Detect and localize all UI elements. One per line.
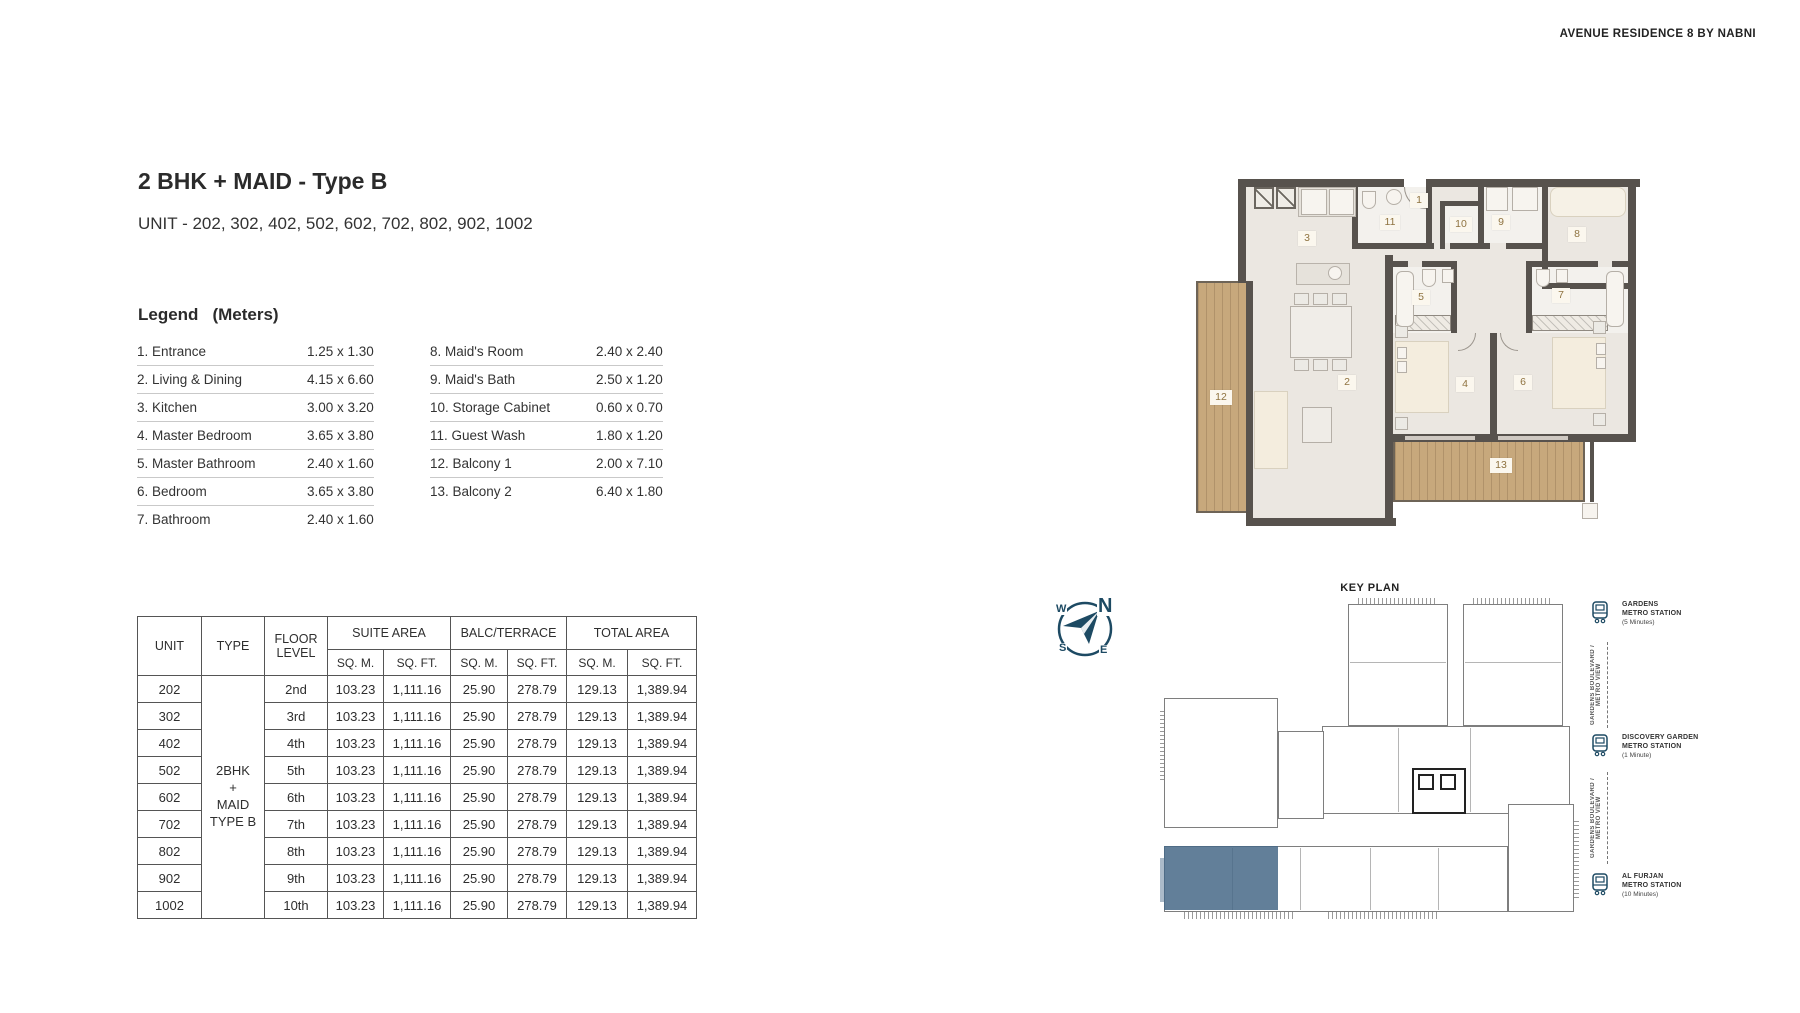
metro-train-icon: [1590, 872, 1610, 896]
legend-row: 13. Balcony 26.40 x 1.80: [430, 478, 663, 505]
nightstand-icon: [1593, 321, 1606, 334]
cell-total-sqft: 1,389.94: [628, 838, 697, 865]
balcony-hatch: [1184, 912, 1294, 919]
cell-unit: 302: [138, 703, 202, 730]
col-header-type: TYPE: [202, 617, 265, 676]
cell-unit: 802: [138, 838, 202, 865]
legend-room-dims: 1.25 x 1.30: [307, 344, 374, 359]
pillow-icon: [1596, 343, 1606, 355]
cell-floor: 10th: [265, 892, 328, 919]
keyplan-line: [1470, 728, 1471, 812]
cell-suite-sqft: 1,111.16: [384, 811, 451, 838]
metro-train-icon: [1590, 733, 1610, 757]
station-time: (1 Minute): [1622, 752, 1732, 759]
legend-title: Legend: [138, 305, 198, 324]
wall: [1385, 442, 1393, 526]
cell-suite-sqm: 103.23: [328, 676, 384, 703]
legend-left-column: 1. Entrance1.25 x 1.30 2. Living & Dinin…: [137, 338, 374, 533]
legend-row: 5. Master Bathroom2.40 x 1.60: [137, 450, 374, 478]
chair-icon: [1294, 359, 1309, 371]
toilet-icon: [1362, 191, 1376, 209]
subcol-sqft: SQ. FT.: [384, 650, 451, 676]
legend-room-name: 3. Kitchen: [137, 400, 307, 415]
room-label-living-dining: 2: [1338, 375, 1356, 390]
legend-room-dims: 1.80 x 1.20: [596, 428, 663, 443]
building-wing: [1278, 731, 1324, 819]
room-label-kitchen: 3: [1298, 231, 1316, 246]
legend-room-name: 7. Bathroom: [137, 512, 307, 527]
room-label-entrance: 1: [1410, 193, 1428, 208]
cell-total-sqft: 1,389.94: [628, 757, 697, 784]
cell-suite-sqft: 1,111.16: [384, 838, 451, 865]
station-name: METRO STATION: [1622, 742, 1732, 751]
chair-icon: [1313, 359, 1328, 371]
cell-total-sqft: 1,389.94: [628, 784, 697, 811]
metro-route-dashed-line: [1607, 642, 1608, 728]
washer-icon: [1486, 187, 1508, 211]
maid-bed-icon: [1550, 187, 1626, 217]
cell-unit: 502: [138, 757, 202, 784]
brochure-page: AVENUE RESIDENCE 8 BY NABNI 2 BHK + MAID…: [0, 0, 1800, 1013]
entrance-door-opening: [1404, 179, 1426, 187]
kitchen-sink-icon: [1301, 189, 1327, 215]
balcony-2: [1393, 440, 1585, 502]
legend-row: 3. Kitchen3.00 x 3.20: [137, 394, 374, 422]
sink-icon: [1556, 269, 1568, 283]
legend-room-name: 2. Living & Dining: [137, 372, 307, 387]
type-line: TYPE B: [202, 814, 264, 831]
cell-floor: 5th: [265, 757, 328, 784]
col-header-total-area: TOTAL AREA: [567, 617, 697, 650]
legend-row: 6. Bedroom3.65 x 3.80: [137, 478, 374, 506]
keyplan-line: [1300, 848, 1301, 910]
keyplan-line: [1438, 848, 1439, 910]
cell-suite-sqft: 1,111.16: [384, 892, 451, 919]
col-header-suite-area: SUITE AREA: [328, 617, 451, 650]
key-plan: [1160, 598, 1580, 920]
stove-icon: [1329, 189, 1354, 215]
cell-balc-sqft: 278.79: [508, 838, 567, 865]
page-title: 2 BHK + MAID - Type B: [138, 168, 387, 195]
pillow-icon: [1397, 361, 1407, 373]
station-name: METRO STATION: [1622, 609, 1732, 618]
col-header-unit: UNIT: [138, 617, 202, 676]
cell-balc-sqm: 25.90: [451, 730, 508, 757]
cell-suite-sqm: 103.23: [328, 703, 384, 730]
cell-balc-sqm: 25.90: [451, 865, 508, 892]
room-label-balcony-2: 13: [1490, 458, 1512, 473]
window: [1405, 436, 1475, 440]
cell-balc-sqm: 25.90: [451, 784, 508, 811]
floor-plan: 1 2 3 4 5 6 7 8 9 10 11 12 13: [1190, 175, 1655, 547]
room-label-bedroom: 6: [1514, 375, 1532, 390]
subcol-sqft: SQ. FT.: [628, 650, 697, 676]
cell-total-sqm: 129.13: [567, 892, 628, 919]
cell-balc-sqft: 278.79: [508, 757, 567, 784]
legend-room-dims: 2.40 x 2.40: [596, 344, 663, 359]
shower-icon: [1512, 187, 1538, 211]
cell-total-sqm: 129.13: [567, 784, 628, 811]
legend-room-dims: 2.00 x 7.10: [596, 456, 663, 471]
cell-floor: 2nd: [265, 676, 328, 703]
cell-unit: 602: [138, 784, 202, 811]
unit-area-table: UNIT TYPE FLOOR LEVEL SUITE AREA BALC/TE…: [137, 616, 697, 919]
balcony-hatch: [1574, 818, 1579, 898]
keyplan-line: [1370, 848, 1371, 910]
cell-suite-sqft: 1,111.16: [384, 865, 451, 892]
room-label-master-bathroom: 5: [1412, 290, 1430, 305]
cell-total-sqm: 129.13: [567, 865, 628, 892]
station-name: AL FURJAN: [1622, 872, 1732, 881]
building-wing: [1463, 604, 1563, 726]
cell-unit: 1002: [138, 892, 202, 919]
metro-station-item: AL FURJAN METRO STATION (10 Minutes): [1622, 872, 1732, 898]
cell-total-sqft: 1,389.94: [628, 811, 697, 838]
legend-room-name: 10. Storage Cabinet: [430, 400, 596, 415]
compass-west: W: [1055, 604, 1067, 615]
legend-room-dims: 2.40 x 1.60: [307, 512, 374, 527]
wall: [1440, 201, 1445, 249]
cell-floor: 7th: [265, 811, 328, 838]
building-wing: [1508, 804, 1574, 912]
wall: [1478, 179, 1484, 249]
keyplan-line: [1465, 662, 1561, 663]
subcol-sqm: SQ. M.: [567, 650, 628, 676]
legend-room-name: 12. Balcony 1: [430, 456, 596, 471]
metro-corridor-label: GARDENS BOULEVARD / METRO VIEW: [1590, 642, 1602, 728]
cell-balc-sqm: 25.90: [451, 703, 508, 730]
toilet-icon: [1536, 269, 1550, 287]
compass: W N S E: [1053, 596, 1117, 660]
cell-floor: 4th: [265, 730, 328, 757]
table-row: 202 2BHK + MAID TYPE B 2nd 103.23 1,111.…: [138, 676, 697, 703]
subcol-sqm: SQ. M.: [328, 650, 384, 676]
cell-suite-sqm: 103.23: [328, 865, 384, 892]
cell-floor: 3rd: [265, 703, 328, 730]
legend-room-dims: 3.65 x 3.80: [307, 428, 374, 443]
door-opening: [1408, 261, 1422, 267]
room-label-maids-room: 8: [1568, 227, 1586, 242]
wall: [1440, 201, 1482, 206]
door-opening: [1490, 243, 1506, 249]
cell-total-sqft: 1,389.94: [628, 892, 697, 919]
cell-balc-sqm: 25.90: [451, 757, 508, 784]
cell-balc-sqft: 278.79: [508, 892, 567, 919]
window: [1498, 436, 1568, 440]
col-header-balc-terrace: BALC/TERRACE: [451, 617, 567, 650]
metro-station-item: DISCOVERY GARDEN METRO STATION (1 Minute…: [1622, 733, 1732, 759]
metro-route-dashed-line: [1607, 772, 1608, 864]
cell-type: 2BHK + MAID TYPE B: [202, 676, 265, 919]
nightstand-icon: [1593, 413, 1606, 426]
station-time: (5 Minutes): [1622, 619, 1732, 626]
cell-suite-sqm: 103.23: [328, 892, 384, 919]
brand-text: AVENUE RESIDENCE 8 BY NABNI: [1456, 28, 1756, 40]
cell-suite-sqft: 1,111.16: [384, 676, 451, 703]
legend-room-name: 9. Maid's Bath: [430, 372, 596, 387]
door-opening: [1598, 261, 1612, 267]
cell-suite-sqft: 1,111.16: [384, 703, 451, 730]
legend-row: 12. Balcony 12.00 x 7.10: [430, 450, 663, 478]
wall: [1246, 518, 1396, 526]
wall: [1490, 333, 1497, 442]
compass-south: S: [1058, 643, 1067, 654]
legend-row: 7. Bathroom2.40 x 1.60: [137, 506, 374, 533]
chair-icon: [1313, 293, 1328, 305]
subcol-sqft: SQ. FT.: [508, 650, 567, 676]
sink-icon: [1386, 189, 1402, 205]
cell-balc-sqft: 278.79: [508, 730, 567, 757]
room-label-master-bedroom: 4: [1456, 377, 1474, 392]
cell-unit: 902: [138, 865, 202, 892]
room-label-guest-wash: 11: [1380, 215, 1400, 230]
type-line: +: [202, 780, 264, 797]
sofa-icon: [1254, 391, 1288, 469]
balcony-hatch: [1328, 912, 1438, 919]
sink-icon: [1442, 269, 1454, 283]
cell-suite-sqm: 103.23: [328, 730, 384, 757]
legend-room-name: 4. Master Bedroom: [137, 428, 307, 443]
wall: [1393, 261, 1457, 267]
wall: [1526, 261, 1628, 267]
legend-right-column: 8. Maid's Room2.40 x 2.40 9. Maid's Bath…: [430, 338, 663, 505]
cell-suite-sqft: 1,111.16: [384, 757, 451, 784]
keyplan-line: [1398, 728, 1399, 812]
cell-suite-sqm: 103.23: [328, 838, 384, 865]
cell-total-sqft: 1,389.94: [628, 865, 697, 892]
cell-suite-sqm: 103.23: [328, 784, 384, 811]
cell-balc-sqft: 278.79: [508, 676, 567, 703]
legend-row: 8. Maid's Room2.40 x 2.40: [430, 338, 663, 366]
pillow-icon: [1596, 357, 1606, 369]
building-wing: [1164, 698, 1278, 828]
cell-balc-sqft: 278.79: [508, 703, 567, 730]
cell-balc-sqm: 25.90: [451, 811, 508, 838]
legend-row: 4. Master Bedroom3.65 x 3.80: [137, 422, 374, 450]
type-line: MAID: [202, 797, 264, 814]
chair-icon: [1332, 359, 1347, 371]
room-label-bathroom: 7: [1552, 288, 1570, 303]
cell-floor: 6th: [265, 784, 328, 811]
wall: [1590, 442, 1594, 502]
legend-room-name: 13. Balcony 2: [430, 484, 596, 499]
cell-suite-sqm: 103.23: [328, 757, 384, 784]
utility-box: [1582, 503, 1598, 519]
cell-suite-sqm: 103.23: [328, 811, 384, 838]
unit-list: UNIT - 202, 302, 402, 502, 602, 702, 802…: [138, 214, 533, 234]
legend-room-name: 8. Maid's Room: [430, 344, 596, 359]
cell-total-sqft: 1,389.94: [628, 676, 697, 703]
cell-balc-sqft: 278.79: [508, 784, 567, 811]
legend-row: 11. Guest Wash1.80 x 1.20: [430, 422, 663, 450]
cell-balc-sqft: 278.79: [508, 811, 567, 838]
cell-unit: 202: [138, 676, 202, 703]
legend-room-name: 1. Entrance: [137, 344, 307, 359]
legend-room-dims: 3.65 x 3.80: [307, 484, 374, 499]
chair-icon: [1294, 293, 1309, 305]
cell-total-sqm: 129.13: [567, 811, 628, 838]
legend-room-dims: 6.40 x 1.80: [596, 484, 663, 499]
nightstand-icon: [1395, 417, 1408, 430]
cell-suite-sqft: 1,111.16: [384, 784, 451, 811]
island-sink-icon: [1328, 266, 1342, 280]
elevator-shaft: [1418, 774, 1434, 790]
wall: [1426, 179, 1432, 249]
legend-room-name: 6. Bedroom: [137, 484, 307, 499]
compass-north: N: [1097, 596, 1113, 616]
legend-units-label: (Meters): [212, 305, 278, 324]
cell-balc-sqm: 25.90: [451, 676, 508, 703]
room-label-balcony-1: 12: [1210, 390, 1232, 405]
cell-unit: 702: [138, 811, 202, 838]
station-name: DISCOVERY GARDEN: [1622, 733, 1732, 742]
col-header-floor: FLOOR LEVEL: [265, 617, 328, 676]
wall: [1246, 281, 1253, 526]
cell-suite-sqft: 1,111.16: [384, 730, 451, 757]
wall: [1385, 255, 1393, 442]
toilet-icon: [1422, 269, 1436, 287]
key-plan-title: KEY PLAN: [1160, 582, 1580, 594]
legend-room-dims: 2.40 x 1.60: [307, 456, 374, 471]
wall: [1238, 179, 1246, 283]
legend-row: 2. Living & Dining4.15 x 6.60: [137, 366, 374, 394]
wall: [1352, 243, 1548, 249]
type-line: 2BHK: [202, 763, 264, 780]
station-name: METRO STATION: [1622, 881, 1732, 890]
pillow-icon: [1397, 347, 1407, 359]
shaft-icon: [1276, 187, 1296, 209]
highlighted-unit: [1164, 846, 1278, 910]
compass-east: E: [1099, 645, 1108, 656]
chair-icon: [1332, 293, 1347, 305]
cell-unit: 402: [138, 730, 202, 757]
shaft-icon: [1254, 187, 1274, 209]
bathtub-icon: [1606, 271, 1624, 327]
legend-room-dims: 3.00 x 3.20: [307, 400, 374, 415]
highlighted-unit-balcony: [1160, 858, 1164, 902]
subcol-sqm: SQ. M.: [451, 650, 508, 676]
cell-total-sqm: 129.13: [567, 703, 628, 730]
cell-total-sqm: 129.13: [567, 757, 628, 784]
legend-room-dims: 0.60 x 0.70: [596, 400, 663, 415]
dining-table-icon: [1290, 306, 1352, 358]
keyplan-line: [1350, 662, 1446, 663]
legend-room-name: 5. Master Bathroom: [137, 456, 307, 471]
cell-balc-sqm: 25.90: [451, 838, 508, 865]
cell-total-sqm: 129.13: [567, 730, 628, 757]
cell-balc-sqm: 25.90: [451, 892, 508, 919]
elevator-shaft: [1440, 774, 1456, 790]
cell-total-sqm: 129.13: [567, 838, 628, 865]
metro-corridor-label: GARDENS BOULEVARD / METRO VIEW: [1590, 772, 1602, 864]
cell-total-sqft: 1,389.94: [628, 703, 697, 730]
cell-floor: 8th: [265, 838, 328, 865]
building-wing: [1348, 604, 1448, 726]
legend-row: 10. Storage Cabinet0.60 x 0.70: [430, 394, 663, 422]
legend-room-dims: 4.15 x 6.60: [307, 372, 374, 387]
coffee-table-icon: [1302, 407, 1332, 443]
metro-train-icon: [1590, 600, 1610, 624]
wall: [1238, 179, 1640, 187]
room-label-maids-bath: 9: [1492, 215, 1510, 230]
legend-room-dims: 2.50 x 1.20: [596, 372, 663, 387]
legend-row: 1. Entrance1.25 x 1.30: [137, 338, 374, 366]
station-name: GARDENS: [1622, 600, 1732, 609]
cell-floor: 9th: [265, 865, 328, 892]
wall: [1628, 179, 1636, 442]
room-label-storage: 10: [1450, 217, 1472, 232]
station-time: (10 Minutes): [1622, 891, 1732, 898]
metro-station-item: GARDENS METRO STATION (5 Minutes): [1622, 600, 1732, 626]
legend-room-name: 11. Guest Wash: [430, 428, 596, 443]
legend-row: 9. Maid's Bath2.50 x 1.20: [430, 366, 663, 394]
cell-balc-sqft: 278.79: [508, 865, 567, 892]
legend-heading: Legend(Meters): [138, 305, 279, 325]
cell-total-sqft: 1,389.94: [628, 730, 697, 757]
cell-total-sqm: 129.13: [567, 676, 628, 703]
